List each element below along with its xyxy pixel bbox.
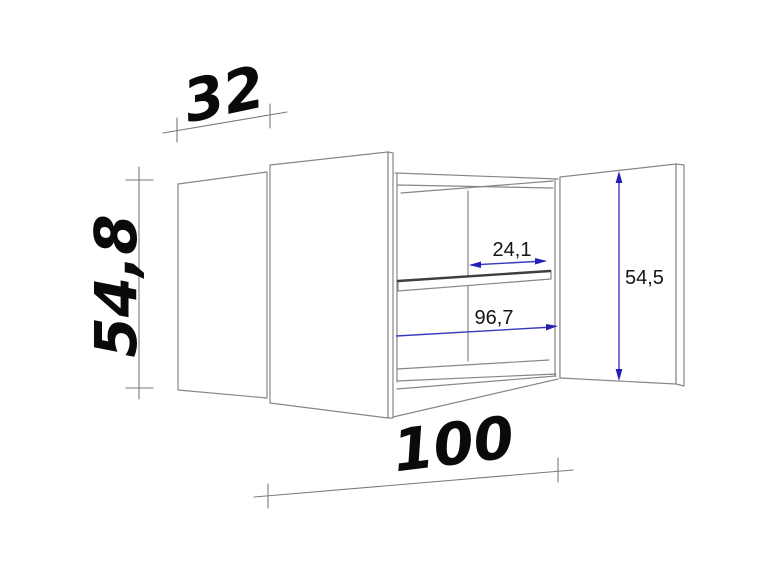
diagram-canvas: 32 54,8 100 24,1 96,7 54,5 [0, 0, 770, 578]
left-side-panel [178, 172, 267, 398]
interior-width-dim-value: 96,7 [475, 307, 514, 329]
depth-dim-label: 32 [177, 53, 270, 136]
cabinet-dimension-drawing: 32 54,8 100 24,1 96,7 54,5 [0, 0, 770, 578]
width-dim-label: 100 [389, 403, 517, 485]
right-door-edge [676, 164, 684, 386]
upper-width-dim-line [471, 261, 545, 265]
left-door-panel [270, 152, 388, 418]
left-door-edge [388, 152, 393, 418]
interior-top-front-edge [395, 173, 558, 179]
cabinet-lines [178, 152, 684, 418]
upper-width-arrow-left [469, 262, 481, 269]
door-height-dim-value: 54,5 [625, 267, 664, 289]
height-dim-label: 54,8 [82, 214, 150, 357]
interior-width-arrow-right [546, 324, 558, 331]
upper-width-arrow-right [535, 258, 547, 265]
shelf [398, 271, 551, 291]
upper-width-dim-value: 24,1 [493, 239, 532, 261]
interior-back-bottom-edge [397, 360, 549, 369]
